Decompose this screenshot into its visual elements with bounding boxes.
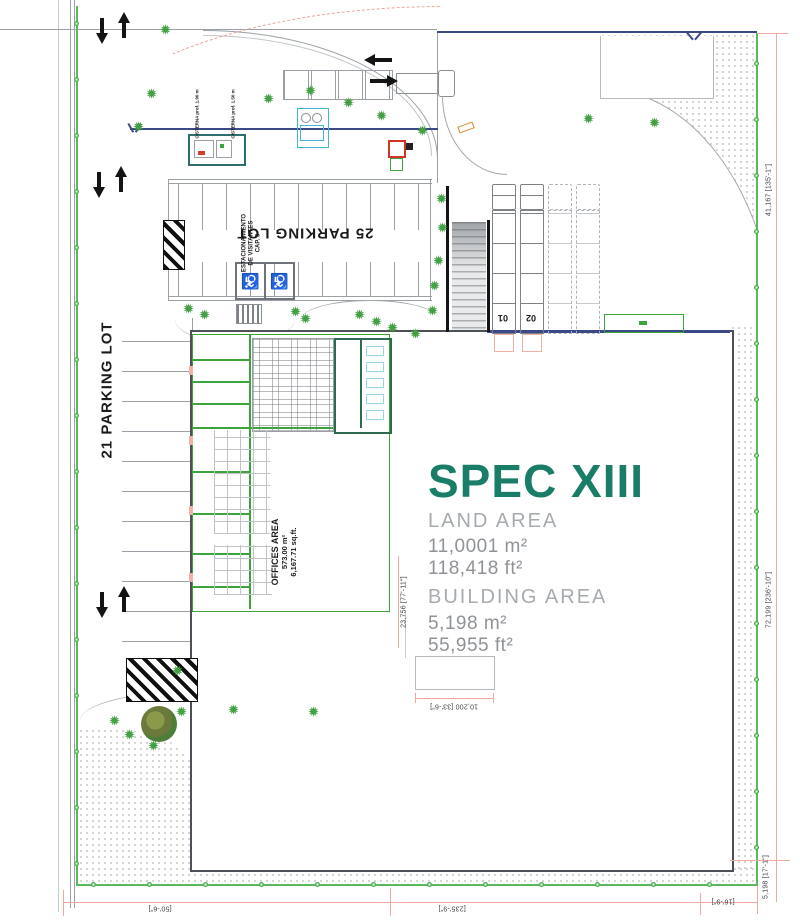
office-door [189, 366, 193, 375]
truck-cab [520, 184, 544, 210]
future-dock-bay [548, 210, 572, 334]
curb-line-1 [70, 0, 71, 908]
boundary-east-markers [753, 60, 760, 875]
tree-icon [146, 88, 157, 99]
traffic-arrow-up-icon [122, 16, 126, 38]
dim-line-west-wall [398, 556, 399, 648]
ramp-wall-right [487, 220, 490, 332]
north-lot-right-edge [430, 180, 431, 300]
dim-tick [700, 893, 701, 915]
handicap-stall: ♿ [264, 262, 295, 300]
north-lot-stalls-bottom [178, 262, 430, 296]
north-lot-top-line-1 [168, 179, 432, 180]
equipment-marker [198, 151, 205, 155]
building-area-imperial: 55,955 ft² [428, 635, 728, 657]
existing-tree [141, 706, 177, 742]
equipment-pad [390, 158, 403, 171]
traffic-arrow-down-icon [100, 592, 104, 614]
building-area-label: BUILDING AREA [428, 586, 728, 609]
traffic-arrow-left-icon [368, 58, 392, 62]
dock-door [522, 334, 542, 352]
boundary-south-markers [90, 881, 750, 888]
land-area-metric: 11,0001 m² [428, 536, 728, 558]
west-lot-stalls [122, 318, 192, 642]
pool [297, 108, 329, 148]
crosswalk-hatch [126, 658, 198, 702]
drive-curve-cutout [600, 88, 757, 325]
project-title: SPEC XIII [428, 458, 728, 504]
dock-landscape-strip [604, 314, 684, 333]
cafeteria [252, 338, 334, 432]
land-area-imperial: 118,418 ft² [428, 558, 728, 580]
gate-arc [442, 96, 507, 175]
north-lot-bottom-line-1 [168, 296, 432, 297]
truck-cab [438, 70, 455, 97]
office-door [189, 506, 193, 515]
dim-tick [390, 888, 391, 916]
future-truck-cab [576, 184, 600, 210]
dock-ramp [452, 222, 486, 330]
future-dock-bay [576, 210, 600, 334]
land-area-label: LAND AREA [428, 510, 728, 533]
landscape-top-right [600, 33, 757, 325]
open-office-desks [214, 545, 272, 595]
north-lot-stalls-top [178, 184, 430, 230]
traffic-arrow-up-icon [122, 590, 126, 612]
handicap-icon: ♿ [270, 272, 289, 290]
dim-line-notch [415, 698, 493, 699]
title-block: SPEC XIII LAND AREA 11,0001 m² 118,418 f… [428, 458, 728, 657]
traffic-arrow-down-icon [97, 172, 101, 194]
driveway-notch [600, 36, 714, 99]
switchgear [406, 143, 413, 150]
cistern-house [188, 134, 246, 166]
traffic-arrow-right-icon [370, 79, 394, 83]
site-plan: 21 PARKING LOT 25 PARKING LOT ♿ ♿ CI [0, 0, 800, 920]
water-line [130, 128, 438, 130]
drive-west-edge [437, 33, 438, 183]
tree-icon [433, 255, 444, 266]
gate-stalls [283, 70, 393, 100]
dock-door [494, 334, 514, 352]
top-boundary-utility-line [437, 31, 757, 33]
office-door [189, 573, 193, 582]
ramp-wall-left [446, 186, 449, 332]
open-office-desks [214, 430, 270, 534]
ramp-hatch [163, 220, 185, 270]
dim-tick [757, 33, 788, 34]
truck-cab [492, 184, 516, 210]
dim-tick [493, 693, 494, 703]
entry-walk [236, 304, 262, 324]
handicap-icon: ♿ [241, 272, 260, 290]
future-truck-cab [548, 184, 572, 210]
building-area-metric: 5,198 m² [428, 613, 728, 635]
traffic-arrow-down-icon [100, 18, 104, 40]
traffic-arrow-up-icon [119, 170, 123, 192]
tree-icon [583, 113, 594, 124]
transformer [388, 140, 406, 158]
restrooms [334, 338, 392, 434]
dim-tick [730, 860, 790, 861]
wall-notch [415, 656, 495, 690]
dim-tick [757, 886, 758, 914]
dim-line-south [63, 902, 757, 903]
dim-line-east [776, 33, 777, 902]
boundary-west-markers [73, 20, 80, 880]
dim-tick [415, 693, 416, 703]
office-door [189, 436, 193, 445]
street-edge-line [58, 0, 59, 912]
dim-tick [63, 890, 64, 916]
